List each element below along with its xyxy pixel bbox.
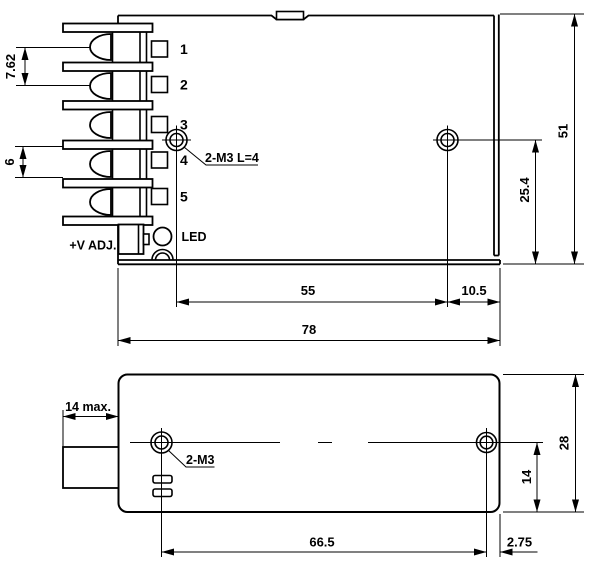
case-outline [119, 375, 500, 513]
terminal-block [63, 24, 153, 226]
led-label: LED [182, 230, 207, 244]
vadj-potentiometer [119, 225, 144, 255]
dim-terminal-depth: 14 max. [63, 400, 119, 447]
dimension-label: 66.5 [309, 535, 334, 550]
terminal-number-label: 1 [180, 41, 188, 57]
terminal-bar [63, 179, 153, 188]
dimension-label: 25.4 [517, 177, 532, 203]
terminal-number-label: 2 [180, 77, 188, 93]
dim-terminal-pitch-lower: 6 [2, 147, 63, 178]
dimension-label: 55 [301, 283, 315, 298]
hole-callout-label: 2-M3 L=4 [205, 151, 259, 165]
vadj-label: +V ADJ. [69, 239, 116, 253]
wire-hole-square [152, 41, 168, 57]
dimension-label: 6 [2, 158, 17, 165]
technical-drawing: 1 2 3 4 5 2-M3 L=4 +V ADJ. LED [0, 0, 600, 575]
terminal-bar [63, 24, 153, 33]
dim-case-depth: 28 [503, 375, 584, 513]
top-view: 1 2 3 4 5 2-M3 L=4 +V ADJ. LED [2, 12, 584, 347]
led-indicator [154, 228, 172, 246]
wire-hole-square [152, 152, 168, 168]
extension-line [503, 375, 584, 513]
terminal-block-side [63, 447, 119, 488]
terminal-bar [63, 101, 153, 110]
dim-case-height: 51 [500, 14, 584, 264]
dimension-label: 7.62 [3, 54, 18, 79]
terminal-number-label: 4 [180, 152, 188, 168]
dim-hole-to-base: 14 [501, 443, 543, 513]
bottom-view: 2-M3 14 max. 28 14 66.5 2.75 [63, 375, 584, 558]
extension-line [500, 14, 584, 264]
hole-callout-label: 2-M3 [186, 453, 215, 467]
vadj-pot-shaft [144, 234, 150, 245]
dimension-label: 51 [556, 124, 571, 138]
wire-hole-square [152, 77, 168, 93]
extension-line [15, 147, 63, 178]
drawing-canvas: 1 2 3 4 5 2-M3 L=4 +V ADJ. LED [0, 0, 600, 575]
vent-slot [153, 476, 172, 484]
dimension-label: 14 max. [65, 400, 111, 414]
dimension-label: 10.5 [461, 283, 486, 298]
dimension-label: 28 [557, 436, 572, 450]
dimension-label: 78 [302, 322, 316, 337]
dimension-label: 14 [519, 469, 534, 484]
terminal-bar [63, 63, 153, 72]
wire-hole-square [152, 117, 168, 133]
vent-slot [153, 489, 172, 497]
dimension-label: 2.75 [507, 535, 532, 550]
terminal-number-label: 5 [180, 189, 188, 205]
terminal-bar [63, 141, 153, 150]
wire-hole-square [152, 189, 168, 205]
cover-tab [277, 12, 304, 20]
